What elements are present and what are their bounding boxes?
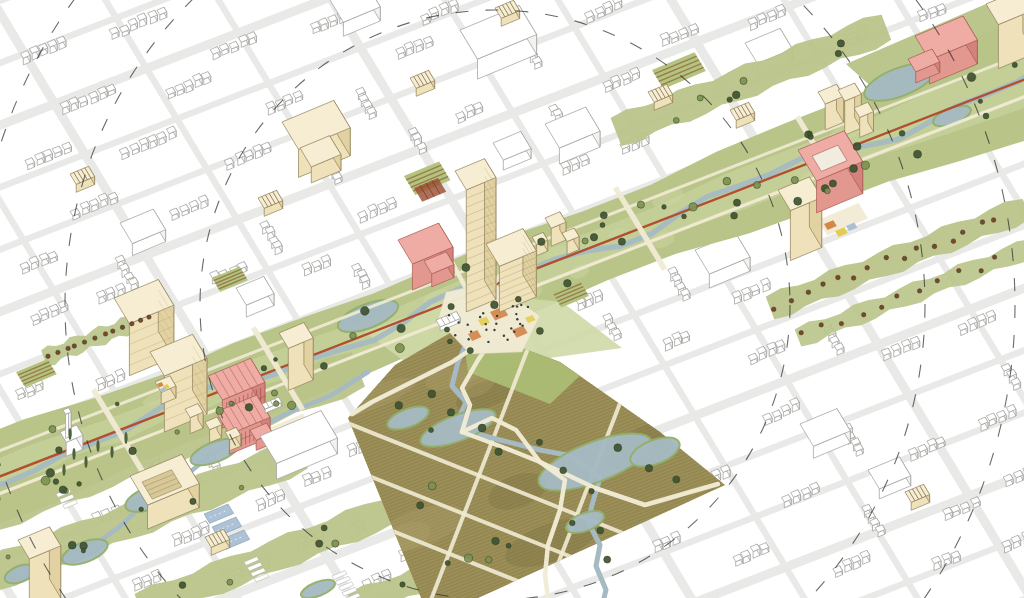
masterplan-canvas: [0, 0, 1024, 598]
masterplan-figure: [0, 0, 1024, 598]
